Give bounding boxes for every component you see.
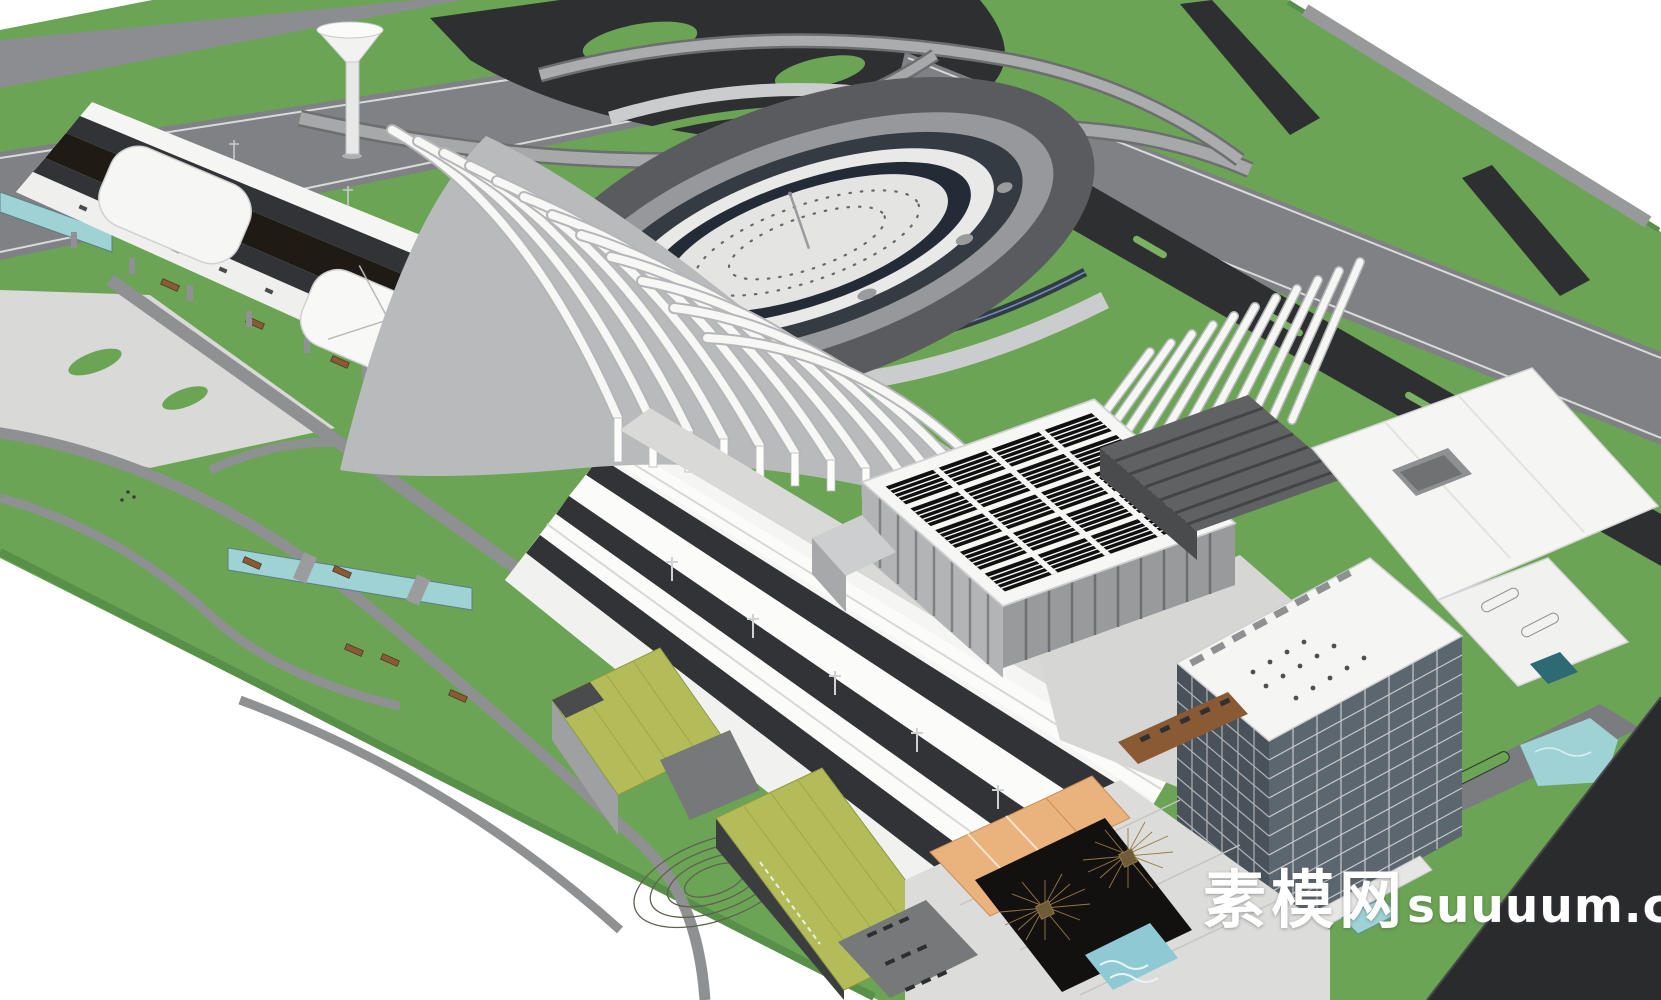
render-canvas: 素模网suuuum.com <box>0 0 1661 1000</box>
watermark-domain: suuuum.com <box>1407 879 1661 934</box>
watermark: 素模网suuuum.com <box>1203 850 1661 941</box>
watermark-site-name: 素模网 <box>1203 850 1407 941</box>
water-tower-top <box>317 22 383 38</box>
water-tower-stem <box>346 58 359 154</box>
